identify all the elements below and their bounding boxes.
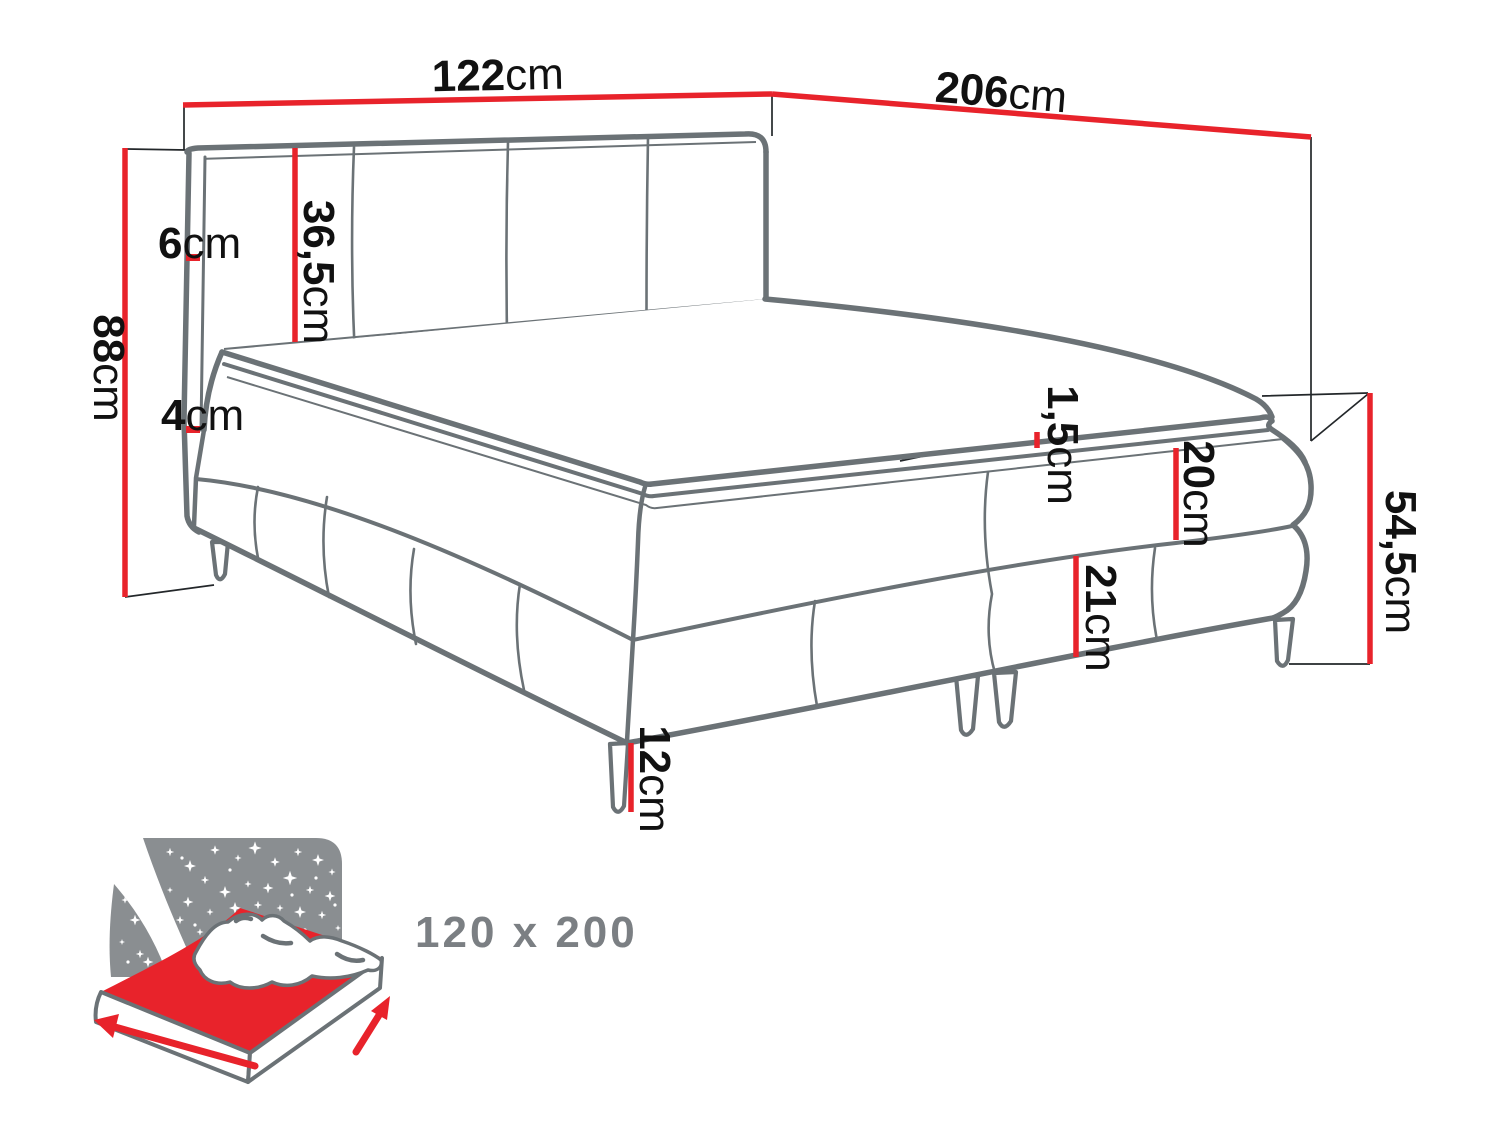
leg-front-center bbox=[610, 743, 628, 812]
dim-label-122: 122cm bbox=[431, 50, 564, 102]
leg-right bbox=[1275, 619, 1293, 666]
icon-length-arrow-shaft bbox=[356, 1012, 381, 1052]
dim-label-6: 6cm bbox=[158, 219, 241, 268]
bed-size-icon bbox=[94, 838, 390, 1082]
dim-label-21: 21cm bbox=[1076, 564, 1125, 672]
dim-label-1-5: 1,5cm bbox=[1038, 385, 1087, 505]
dim-label-88: 88cm bbox=[84, 314, 133, 422]
dim-label-12: 12cm bbox=[630, 725, 679, 833]
dim-label-4: 4cm bbox=[161, 391, 244, 440]
leg-middle-1 bbox=[956, 676, 978, 735]
leg-front-left bbox=[212, 542, 228, 579]
bed-dimensions-diagram: 122cm 206cm 88cm 36,5cm 6cm 4cm 1,5cm 20… bbox=[0, 0, 1500, 1125]
ext-88-top bbox=[125, 149, 186, 150]
leg-middle-2 bbox=[994, 672, 1016, 727]
diagram-page: 122cm 206cm 88cm 36,5cm 6cm 4cm 1,5cm 20… bbox=[0, 0, 1500, 1125]
bed-drawing bbox=[184, 134, 1311, 812]
dim-label-36-5: 36,5cm bbox=[294, 200, 343, 344]
dim-label-54-5: 54,5cm bbox=[1376, 490, 1425, 634]
size-caption: 120 x 200 bbox=[415, 908, 638, 957]
ext-88-bottom bbox=[125, 585, 214, 597]
dim-label-20: 20cm bbox=[1174, 440, 1223, 548]
icon-duvet bbox=[194, 914, 381, 988]
dim-label-206: 206cm bbox=[933, 63, 1069, 123]
